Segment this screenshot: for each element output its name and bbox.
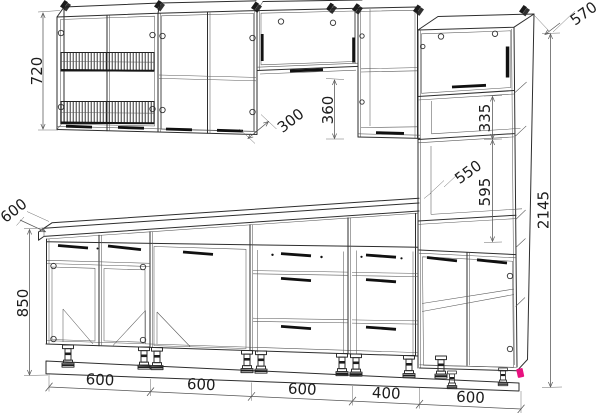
dim-label-850: 850 [14,289,32,318]
accent-marker [516,368,524,378]
door-handle [477,260,507,263]
technical-drawing-page: 720 600 850 300 360 570 [0,0,600,413]
leg-foot [403,356,415,378]
dimension-wall-height: 720 [28,11,60,131]
drawer-handle [281,278,311,280]
open-shelf-unit [358,7,420,138]
dim-label-2145: 2145 [535,191,553,229]
hinge-icon [507,346,512,351]
drawer-handle [108,246,141,250]
hinge-icon [140,264,145,269]
leg-foot [62,345,74,367]
door-handle [66,126,92,127]
lift-stay-hardware [506,47,510,78]
leg-foot [241,351,253,373]
dim-label-570: 570 [567,0,600,29]
dimension-wall-gap: 360 [319,79,344,140]
flap-handle [290,70,323,71]
flap-handle [376,133,404,134]
leg-foot [350,354,362,376]
screw-dot [271,254,273,256]
hinge-icons [278,19,335,26]
door-handle [166,129,192,130]
base-cabinets [46,213,519,391]
flap-hinge-hardware [352,38,355,63]
screw-dot [97,248,99,250]
screw-dot [400,257,402,259]
drawer-handle [366,255,396,257]
leg-foot [435,356,447,378]
drawer-handle [58,246,88,249]
hinge-icon [507,273,512,278]
drawer-cabinet-400 [352,251,418,356]
flap-hinge-hardware [261,34,264,61]
door-handle [217,130,243,131]
dim-label-360: 360 [319,96,337,125]
leg-foot [255,351,267,373]
wall-cabinet-dishrack [57,3,161,132]
door-handle [118,127,144,128]
dimension-tall-depth: 570 [534,0,600,34]
hinge-icon [438,34,443,39]
drawer-handle [281,254,311,256]
screw-dot [360,256,362,258]
plate-rack-lower [61,102,154,124]
dimension-niche-height: 595 [476,140,502,243]
drawer-handle [366,280,396,282]
drawer-handle [366,327,396,329]
width-label-5: 600 [456,388,485,407]
leg-foot [498,368,508,386]
flap-handle [452,85,486,87]
dim-label-335: 335 [476,104,494,133]
dim-label-600-depth: 600 [0,195,31,227]
width-label-3: 600 [288,380,317,399]
adjustable-legs [62,345,447,378]
countertop [39,198,420,240]
dim-label-595: 595 [476,178,494,207]
hinge-icon [492,31,497,36]
screw-dot [320,256,322,258]
dimension-worktop-depth: 600 [0,195,49,232]
door-handle [183,252,213,254]
dimension-base-height: 850 [14,228,48,376]
drawer-handle [281,326,311,328]
drawer-cabinet-600 [253,250,348,354]
dimension-total-height: 2145 [535,33,563,388]
dim-label-300: 300 [274,105,308,137]
dimension-wall-depth: 300 [240,105,308,144]
dim-label-720: 720 [28,57,46,86]
width-label-1: 600 [85,370,114,389]
wall-cabinet-flap-door [257,0,362,74]
width-label-2: 600 [187,375,216,394]
wall-cabinet-double-door [158,1,263,135]
kitchen-elevation-drawing: 720 600 850 300 360 570 [0,0,600,413]
base-cabinet-full-door [154,247,246,349]
hinge-icon [51,263,56,268]
plate-rack-upper [61,53,154,72]
leg-foot [336,354,348,376]
width-label-4: 400 [372,384,401,403]
dimension-tall-upper-section: 335 [476,96,502,140]
